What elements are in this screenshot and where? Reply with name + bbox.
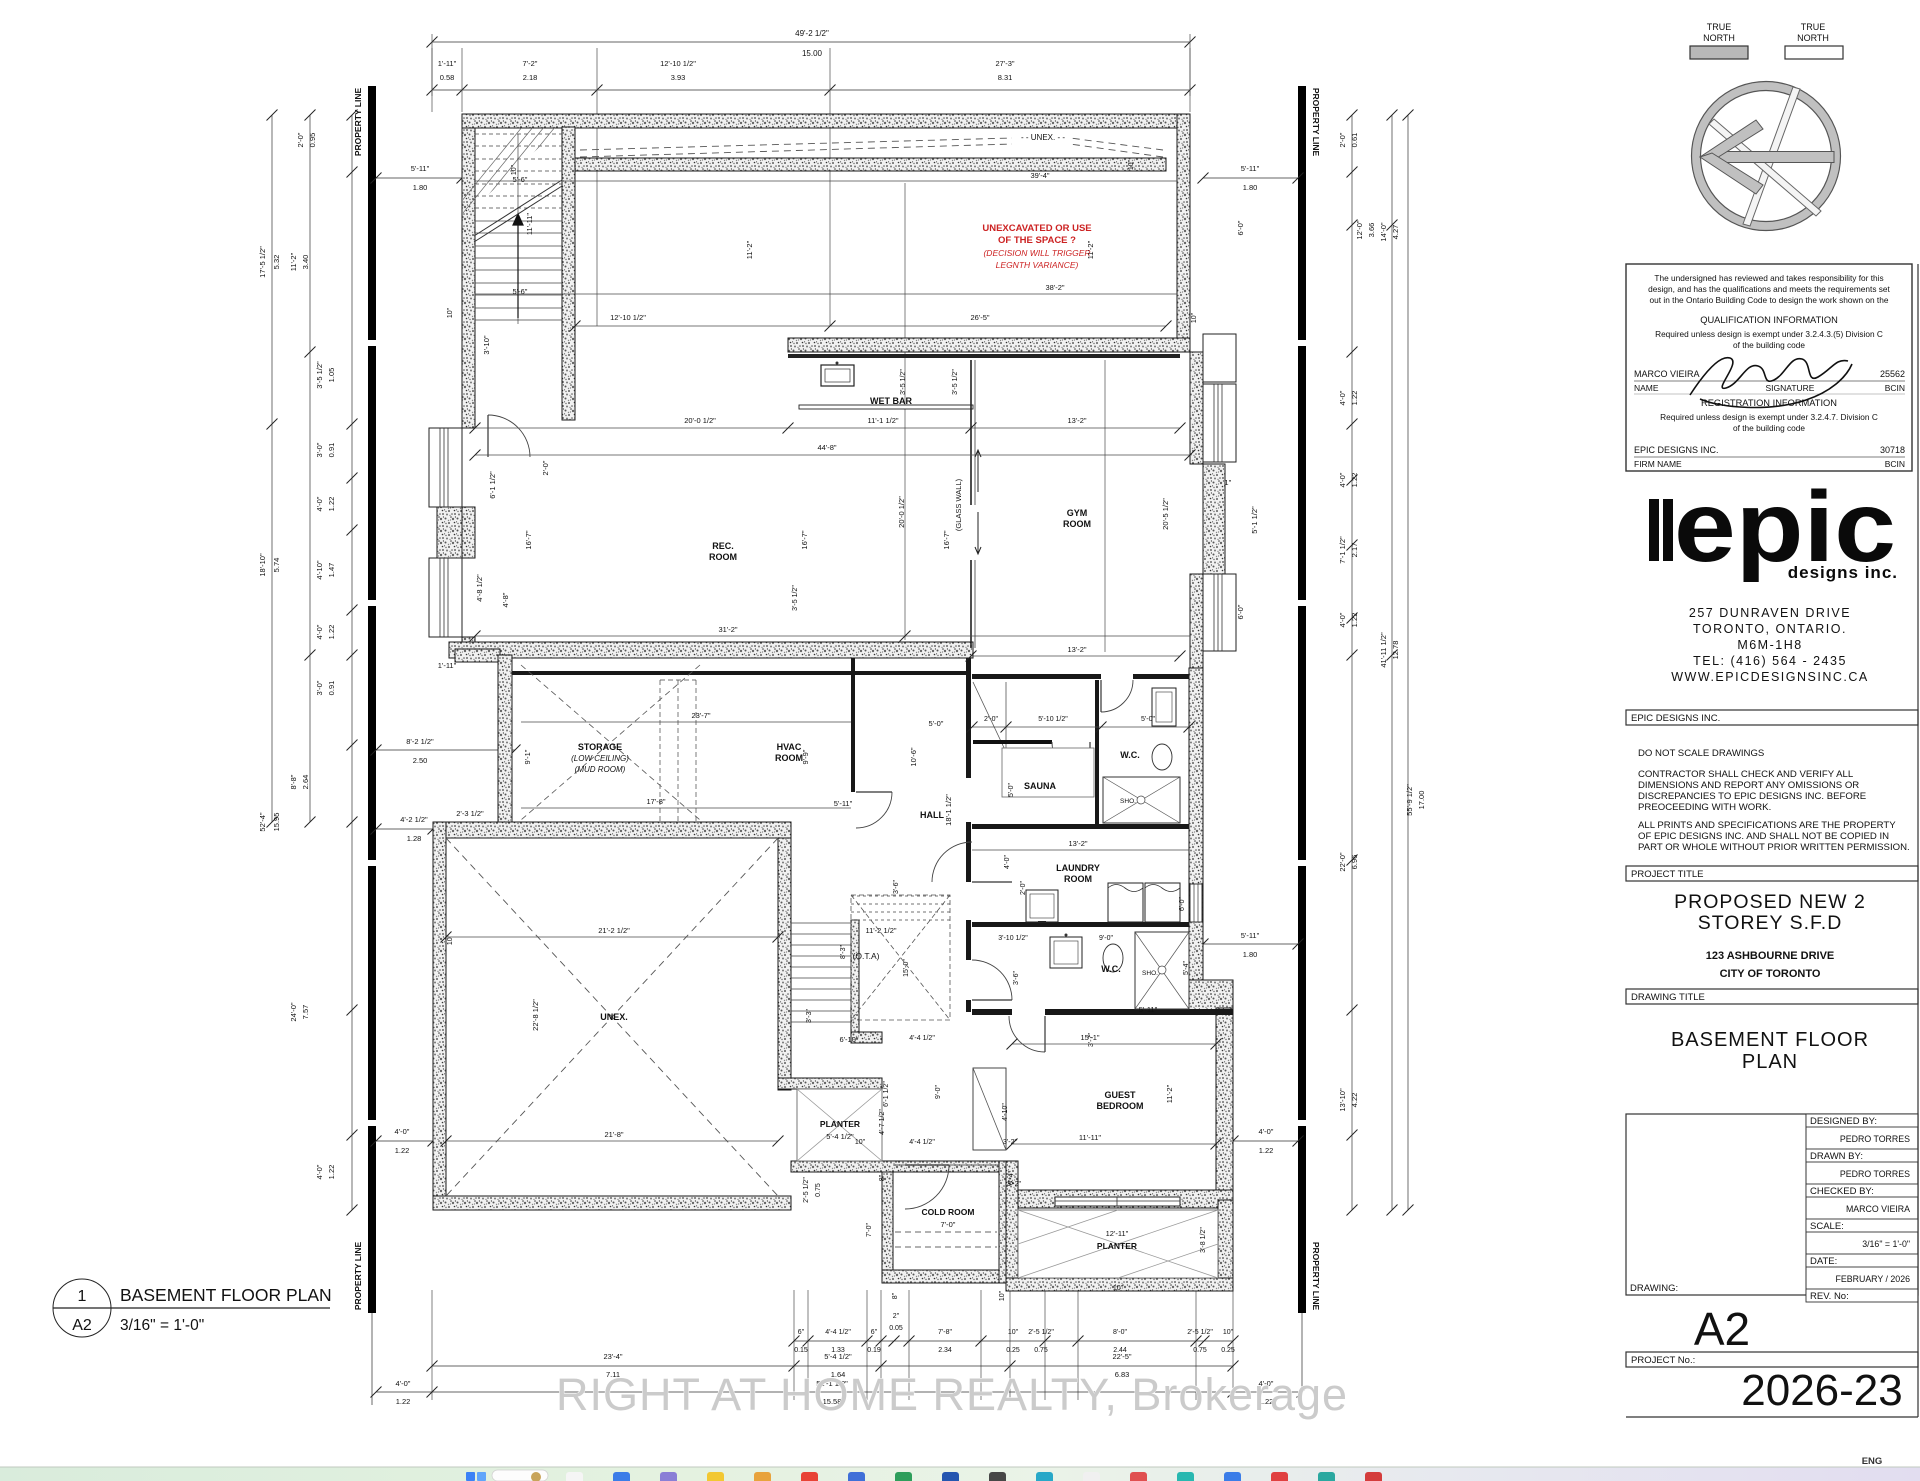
svg-text:The undersigned has reviewed a: The undersigned has reviewed and takes r…	[1654, 273, 1883, 283]
svg-text:0.19: 0.19	[867, 1347, 881, 1354]
svg-text:ALL PRINTS AND SPECIFICATIONS: ALL PRINTS AND SPECIFICATIONS ARE THE PR…	[1638, 820, 1896, 831]
svg-text:3/16" = 1'-0": 3/16" = 1'-0"	[120, 1317, 204, 1334]
svg-text:W.C.: W.C.	[1101, 964, 1121, 974]
svg-text:8.31: 8.31	[998, 73, 1013, 82]
svg-text:13'-2": 13'-2"	[1067, 416, 1086, 425]
svg-text:4'-0": 4'-0"	[1004, 855, 1011, 869]
svg-text:LEGNTH VARIANCE): LEGNTH VARIANCE)	[996, 260, 1079, 270]
svg-text:7.57: 7.57	[301, 1005, 310, 1020]
svg-text:3.93: 3.93	[671, 73, 686, 82]
svg-text:0.15: 0.15	[794, 1347, 808, 1354]
svg-text:OF EPIC DESIGNS INC. AND SHALL: OF EPIC DESIGNS INC. AND SHALL NOT BE CO…	[1638, 831, 1889, 842]
svg-text:MARCO VIEIRA: MARCO VIEIRA	[1634, 369, 1700, 379]
svg-text:DRAWING TITLE: DRAWING TITLE	[1631, 992, 1705, 1003]
svg-text:of the building code: of the building code	[1733, 423, 1805, 433]
svg-text:EPIC DESIGNS INC.: EPIC DESIGNS INC.	[1634, 445, 1719, 455]
svg-text:NORTH: NORTH	[1797, 33, 1829, 43]
svg-text:9'-9": 9'-9"	[801, 749, 810, 764]
svg-text:1.22: 1.22	[1350, 391, 1359, 406]
svg-text:PEDRO TORRES: PEDRO TORRES	[1840, 1134, 1910, 1144]
svg-text:COLD ROOM: COLD ROOM	[922, 1207, 975, 1217]
svg-text:2'-5 1/2": 2'-5 1/2"	[1028, 1329, 1054, 1336]
svg-text:3'-0": 3'-0"	[315, 442, 324, 457]
svg-text:31'-2": 31'-2"	[718, 625, 737, 634]
svg-text:5'-0": 5'-0"	[1141, 716, 1155, 723]
svg-text:3'-2": 3'-2"	[1003, 1139, 1017, 1146]
svg-text:12'-11": 12'-11"	[1106, 1229, 1129, 1238]
svg-text:13'-2": 13'-2"	[1067, 645, 1086, 654]
svg-text:1.05: 1.05	[327, 368, 336, 383]
svg-text:4'-0": 4'-0"	[1338, 472, 1347, 487]
svg-text:0.91: 0.91	[327, 681, 336, 696]
svg-text:4'-8 1/2": 4'-8 1/2"	[475, 574, 484, 602]
svg-text:7'-8": 7'-8"	[938, 1329, 952, 1336]
svg-text:1.22: 1.22	[327, 497, 336, 512]
svg-text:PEDRO TORRES: PEDRO TORRES	[1840, 1169, 1910, 1179]
svg-text:5'-4 1/2": 5'-4 1/2"	[826, 1132, 854, 1141]
svg-text:13'-2": 13'-2"	[1068, 839, 1087, 848]
svg-text:ROOM: ROOM	[1064, 874, 1092, 884]
svg-text:1.22: 1.22	[1259, 1146, 1274, 1155]
svg-text:0.58: 0.58	[440, 73, 455, 82]
svg-text:4'-0": 4'-0"	[1338, 390, 1347, 405]
svg-text:6'-10": 6'-10"	[839, 1035, 858, 1044]
svg-text:44'-8": 44'-8"	[817, 443, 836, 452]
svg-text:4'-10": 4'-10"	[1002, 1103, 1009, 1121]
svg-text:designs inc.: designs inc.	[1788, 563, 1898, 582]
svg-text:38'-2": 38'-2"	[1045, 283, 1064, 292]
svg-text:(LOW CEILING): (LOW CEILING)	[571, 754, 629, 763]
svg-text:41'-11 1/2": 41'-11 1/2"	[1379, 632, 1388, 668]
svg-text:DRAWN BY:: DRAWN BY:	[1810, 1151, 1863, 1162]
svg-text:3'-10": 3'-10"	[482, 335, 491, 354]
svg-text:FEBRUARY / 2026: FEBRUARY / 2026	[1836, 1274, 1911, 1284]
svg-text:11'-11": 11'-11"	[1079, 1133, 1102, 1142]
svg-text:QUALIFICATION INFORMATION: QUALIFICATION INFORMATION	[1700, 315, 1838, 325]
svg-text:27'-3": 27'-3"	[995, 59, 1014, 68]
svg-text:5'-6": 5'-6"	[513, 175, 528, 184]
svg-text:3'-5 1/2": 3'-5 1/2"	[792, 585, 799, 611]
svg-text:TRUE: TRUE	[1707, 22, 1732, 32]
svg-text:15'-0": 15'-0"	[903, 959, 910, 977]
svg-text:23'-7": 23'-7"	[691, 711, 710, 720]
svg-text:6": 6"	[798, 1329, 805, 1336]
svg-text:2'-0": 2'-0"	[984, 716, 998, 723]
svg-text:RIGHT AT HOME REALTY, Brokerag: RIGHT AT HOME REALTY, Brokerage	[556, 1369, 1348, 1420]
svg-text:10": 10"	[999, 1290, 1006, 1301]
svg-text:ENG: ENG	[1862, 1456, 1883, 1467]
svg-text:7'-0": 7'-0"	[941, 1220, 956, 1229]
svg-text:WWW.EPICDESIGNSINC.CA: WWW.EPICDESIGNSINC.CA	[1671, 670, 1868, 684]
svg-text:1.22: 1.22	[327, 1165, 336, 1180]
svg-text:1.22: 1.22	[396, 1397, 411, 1406]
svg-text:REC.: REC.	[712, 541, 734, 551]
svg-text:2'-0": 2'-0"	[296, 132, 305, 147]
svg-text:4'-10": 4'-10"	[315, 560, 324, 579]
svg-text:21'-8": 21'-8"	[604, 1130, 623, 1139]
svg-text:6'-4": 6'-4"	[1008, 1171, 1015, 1185]
svg-text:7'-0": 7'-0"	[866, 1223, 873, 1237]
svg-text:OF THE SPACE ?: OF THE SPACE ?	[998, 235, 1076, 246]
svg-text:257 DUNRAVEN DRIVE: 257 DUNRAVEN DRIVE	[1689, 606, 1851, 620]
svg-text:3'-0": 3'-0"	[315, 680, 324, 695]
svg-text:17'-8": 17'-8"	[646, 797, 665, 806]
svg-text:5'-11": 5'-11"	[1241, 164, 1260, 173]
svg-text:11'-2": 11'-2"	[289, 252, 298, 271]
svg-text:2.18: 2.18	[523, 73, 538, 82]
svg-text:9'-0": 9'-0"	[1099, 935, 1113, 942]
svg-text:0.25: 0.25	[1221, 1347, 1235, 1354]
svg-text:8": 8"	[879, 1174, 886, 1181]
svg-text:2": 2"	[893, 1313, 900, 1320]
svg-text:GUEST: GUEST	[1104, 1090, 1136, 1100]
svg-text:ROOM: ROOM	[775, 753, 803, 763]
svg-text:4'-0": 4'-0"	[1259, 1127, 1274, 1136]
svg-text:5'-0": 5'-0"	[929, 719, 944, 728]
svg-text:8'-0": 8'-0"	[1113, 1329, 1127, 1336]
svg-text:1: 1	[78, 1288, 87, 1305]
svg-text:BCIN: BCIN	[1885, 383, 1905, 393]
svg-text:REV. No:: REV. No:	[1810, 1291, 1849, 1302]
svg-text:1.80: 1.80	[1243, 950, 1258, 959]
svg-text:55'-9 1/2": 55'-9 1/2"	[1405, 784, 1414, 816]
svg-text:PROJECT TITLE: PROJECT TITLE	[1631, 869, 1704, 880]
svg-text:11'-2": 11'-2"	[1086, 240, 1095, 259]
svg-text:PROPERTY LINE: PROPERTY LINE	[353, 1242, 363, 1311]
svg-text:Required unless design is exem: Required unless design is exempt under 3…	[1655, 329, 1883, 339]
svg-text:12'-10 1/2": 12'-10 1/2"	[610, 313, 646, 322]
svg-text:11'-2": 11'-2"	[1165, 1084, 1174, 1103]
svg-text:4.27: 4.27	[1391, 225, 1400, 240]
svg-text:6'-1 1/2": 6'-1 1/2"	[883, 1081, 890, 1107]
svg-text:BASEMENT FLOOR PLAN: BASEMENT FLOOR PLAN	[120, 1285, 332, 1305]
svg-text:22'-5": 22'-5"	[1112, 1352, 1131, 1361]
svg-text:0.61: 0.61	[1350, 133, 1359, 148]
svg-text:1.80: 1.80	[413, 183, 428, 192]
svg-text:18'-1 1/2": 18'-1 1/2"	[944, 794, 953, 826]
svg-text:39'-4": 39'-4"	[1030, 171, 1049, 180]
svg-text:6'-0": 6'-0"	[1236, 220, 1245, 235]
svg-text:1.28: 1.28	[407, 834, 422, 843]
svg-text:20'-5 1/2": 20'-5 1/2"	[1161, 498, 1170, 530]
svg-text:4'-4 1/2": 4'-4 1/2"	[825, 1329, 851, 1336]
svg-text:4'-0": 4'-0"	[315, 624, 324, 639]
svg-text:5.32: 5.32	[272, 255, 281, 270]
svg-text:TORONTO, ONTARIO.: TORONTO, ONTARIO.	[1693, 622, 1847, 636]
svg-text:6'-0": 6'-0"	[1179, 897, 1186, 911]
svg-text:11'-2 1/2": 11'-2 1/2"	[865, 926, 896, 935]
svg-text:3/16" = 1'-0": 3/16" = 1'-0"	[1862, 1239, 1910, 1249]
svg-text:24'-0": 24'-0"	[289, 1002, 298, 1021]
svg-text:WET BAR: WET BAR	[870, 396, 912, 406]
svg-text:TEL: (416) 564 - 2435: TEL: (416) 564 - 2435	[1693, 654, 1847, 668]
svg-text:3.66: 3.66	[1367, 223, 1376, 238]
svg-text:0.91: 0.91	[327, 443, 336, 458]
svg-text:25562: 25562	[1880, 369, 1905, 379]
svg-text:out in the Ontario Building Co: out in the Ontario Building Code to desi…	[1650, 295, 1889, 305]
svg-text:TRUE: TRUE	[1801, 22, 1826, 32]
svg-text:PLAN: PLAN	[1742, 1051, 1798, 1073]
svg-text:5'-11": 5'-11"	[411, 164, 430, 173]
svg-text:22'-0": 22'-0"	[1338, 852, 1347, 871]
svg-text:CITY OF TORONTO: CITY OF TORONTO	[1720, 968, 1821, 980]
svg-text:PROPERTY LINE: PROPERTY LINE	[1311, 1242, 1321, 1311]
svg-text:PLANTER: PLANTER	[1097, 1241, 1137, 1251]
svg-text:3'-5 1/2": 3'-5 1/2"	[900, 369, 907, 395]
svg-text:DATE:: DATE:	[1810, 1256, 1837, 1267]
svg-text:(MUD ROOM): (MUD ROOM)	[575, 765, 626, 774]
svg-text:0.75: 0.75	[815, 1183, 822, 1197]
svg-text:4'-7 1/2": 4'-7 1/2"	[879, 1109, 886, 1135]
svg-text:12'-10 1/2": 12'-10 1/2"	[660, 59, 696, 68]
svg-text:52'-4": 52'-4"	[258, 812, 267, 831]
svg-text:4'-0": 4'-0"	[315, 1164, 324, 1179]
svg-text:49'-2 1/2": 49'-2 1/2"	[795, 29, 829, 38]
svg-text:4'-4 1/2": 4'-4 1/2"	[909, 1035, 935, 1042]
svg-text:UNEXCAVATED OR USE: UNEXCAVATED OR USE	[982, 223, 1091, 234]
svg-text:1.22: 1.22	[1350, 613, 1359, 628]
svg-text:GYM: GYM	[1067, 508, 1088, 518]
svg-text:PREOCEEDING WITH WORK.: PREOCEEDING WITH WORK.	[1638, 802, 1771, 813]
svg-text:10": 10"	[1128, 159, 1135, 170]
svg-text:11'-2": 11'-2"	[745, 240, 754, 259]
svg-text:PROPERTY LINE: PROPERTY LINE	[1311, 88, 1321, 157]
svg-text:5'-11": 5'-11"	[1139, 1005, 1158, 1014]
svg-text:3'-5 1/2": 3'-5 1/2"	[315, 361, 324, 389]
svg-text:2'-0": 2'-0"	[1020, 881, 1027, 895]
svg-text:SCALE:: SCALE:	[1810, 1221, 1844, 1232]
svg-text:10": 10"	[1008, 1329, 1019, 1336]
svg-text:PROPOSED NEW 2: PROPOSED NEW 2	[1674, 891, 1866, 913]
svg-text:5'-11": 5'-11"	[834, 799, 853, 808]
svg-text:4.22: 4.22	[1350, 1093, 1359, 1108]
svg-text:6'-0": 6'-0"	[1236, 604, 1245, 619]
svg-text:22'-8 1/2": 22'-8 1/2"	[531, 999, 540, 1031]
svg-text:4'-8": 4'-8"	[501, 592, 510, 607]
svg-text:HALL: HALL	[920, 810, 944, 820]
svg-text:5'-4 1/2": 5'-4 1/2"	[824, 1352, 852, 1361]
svg-text:18'-10": 18'-10"	[258, 553, 267, 577]
svg-text:13'-10": 13'-10"	[1338, 1088, 1347, 1112]
svg-text:10": 10"	[447, 934, 454, 945]
svg-text:15.00: 15.00	[802, 49, 823, 58]
svg-text:4'-0": 4'-0"	[395, 1127, 410, 1136]
svg-text:12'-0": 12'-0"	[1355, 220, 1364, 239]
svg-text:17'-5 1/2": 17'-5 1/2"	[258, 246, 267, 278]
svg-text:3'-3": 3'-3"	[806, 1009, 813, 1023]
svg-text:16'-7": 16'-7"	[800, 530, 809, 549]
svg-text:5'-11": 5'-11"	[1241, 931, 1260, 940]
svg-text:(DECISION WILL TRIGGER: (DECISION WILL TRIGGER	[983, 248, 1090, 258]
svg-text:PART OR WHOLE WITHOUT PRIOR WR: PART OR WHOLE WITHOUT PRIOR WRITTEN PERM…	[1638, 842, 1910, 853]
svg-text:23'-4": 23'-4"	[603, 1352, 622, 1361]
svg-text:1.22: 1.22	[395, 1146, 410, 1155]
svg-text:SHO.: SHO.	[1142, 970, 1158, 977]
svg-text:3'-10 1/2": 3'-10 1/2"	[998, 935, 1028, 942]
svg-text:8": 8"	[892, 1292, 899, 1299]
svg-text:design, and has the qualificat: design, and has the qualifications and m…	[1648, 284, 1890, 294]
svg-text:STORAGE: STORAGE	[578, 742, 622, 752]
svg-text:NORTH: NORTH	[1703, 33, 1735, 43]
svg-text:7'-1 1/2": 7'-1 1/2"	[1338, 536, 1347, 564]
svg-text:SAUNA: SAUNA	[1024, 781, 1057, 791]
svg-text:17.00: 17.00	[1417, 791, 1426, 810]
svg-text:2'-5 1/2": 2'-5 1/2"	[1187, 1329, 1213, 1336]
svg-text:8'-8": 8'-8"	[289, 774, 298, 789]
svg-text:3'-5 1/2": 3'-5 1/2"	[952, 369, 959, 395]
svg-text:9'-0": 9'-0"	[935, 1085, 942, 1099]
svg-text:2'-3 1/2": 2'-3 1/2"	[456, 809, 484, 818]
svg-text:5'-6": 5'-6"	[513, 287, 528, 296]
svg-text:EPIC DESIGNS INC.: EPIC DESIGNS INC.	[1631, 713, 1720, 724]
svg-text:(GLASS WALL): (GLASS WALL)	[954, 478, 963, 531]
svg-text:FIRM NAME: FIRM NAME	[1634, 459, 1682, 469]
svg-text:0.75: 0.75	[1193, 1347, 1207, 1354]
svg-text:UNEX.: UNEX.	[600, 1012, 628, 1022]
svg-text:M6M-1H8: M6M-1H8	[1737, 638, 1802, 652]
svg-text:8'-2 1/2": 8'-2 1/2"	[406, 737, 434, 746]
svg-text:10": 10"	[1223, 1329, 1234, 1336]
svg-text:Required unless design is exem: Required unless design is exempt under 3…	[1660, 412, 1878, 422]
svg-text:2.64: 2.64	[301, 775, 310, 790]
svg-text:5.74: 5.74	[272, 558, 281, 573]
svg-text:6'-1 1/2": 6'-1 1/2"	[488, 471, 497, 499]
svg-text:- - UNEX. - -: - - UNEX. - -	[1021, 133, 1065, 142]
svg-text:21'-2 1/2": 21'-2 1/2"	[598, 926, 630, 935]
svg-text:DRAWING:: DRAWING:	[1630, 1283, 1678, 1294]
svg-text:1.22: 1.22	[1350, 473, 1359, 488]
svg-text:BASEMENT FLOOR: BASEMENT FLOOR	[1671, 1029, 1869, 1051]
svg-text:4'-0": 4'-0"	[396, 1379, 411, 1388]
svg-text:2'-0": 2'-0"	[1338, 132, 1347, 147]
svg-text:W.C.: W.C.	[1120, 750, 1140, 760]
svg-text:1.80: 1.80	[1243, 183, 1258, 192]
svg-text:2'-0": 2'-0"	[541, 460, 550, 475]
svg-text:20'-0 1/2": 20'-0 1/2"	[897, 496, 906, 528]
svg-text:A2: A2	[72, 1317, 92, 1334]
svg-text:PLANTER: PLANTER	[820, 1119, 860, 1129]
svg-text:DISCREPANCIES TO EPIC DESIGNS: DISCREPANCIES TO EPIC DESIGNS INC. BEFOR…	[1638, 791, 1866, 802]
svg-text:5'-0": 5'-0"	[1008, 783, 1015, 797]
svg-text:5'-4": 5'-4"	[1183, 961, 1190, 975]
svg-text:DIMENSIONS AND REPORT ANY OMIS: DIMENSIONS AND REPORT ANY OMISSIONS OR	[1638, 780, 1859, 791]
svg-text:16'-7": 16'-7"	[524, 530, 533, 549]
svg-text:A2: A2	[1694, 1303, 1750, 1355]
svg-text:2.17: 2.17	[1350, 543, 1359, 558]
svg-text:12.78: 12.78	[1391, 641, 1400, 660]
svg-text:1.47: 1.47	[327, 563, 336, 578]
svg-text:15'-1": 15'-1"	[1080, 1033, 1099, 1042]
svg-text:11'-1 1/2": 11'-1 1/2"	[867, 416, 898, 425]
svg-text:PROPERTY LINE: PROPERTY LINE	[353, 88, 363, 157]
svg-text:10": 10"	[1191, 312, 1198, 323]
svg-text:10": 10"	[447, 307, 454, 318]
svg-text:MARCO VIEIRA: MARCO VIEIRA	[1846, 1204, 1910, 1214]
svg-text:15.95: 15.95	[272, 813, 281, 832]
svg-text:CHECKED BY:: CHECKED BY:	[1810, 1186, 1874, 1197]
svg-text:10'-6": 10'-6"	[909, 747, 918, 766]
svg-text:16'-7": 16'-7"	[942, 530, 951, 549]
svg-text:20'-0 1/2": 20'-0 1/2"	[684, 416, 716, 425]
svg-text:1'-11": 1'-11"	[438, 661, 457, 670]
svg-text:7'-2": 7'-2"	[523, 59, 538, 68]
svg-text:DO NOT SCALE DRAWINGS: DO NOT SCALE DRAWINGS	[1638, 748, 1764, 759]
svg-text:ROOM: ROOM	[709, 552, 737, 562]
svg-text:1.22: 1.22	[327, 625, 336, 640]
svg-text:3.40: 3.40	[301, 255, 310, 270]
svg-text:6.96: 6.96	[1350, 855, 1359, 870]
svg-text:STOREY S.F.D: STOREY S.F.D	[1698, 912, 1843, 934]
svg-text:3'-6": 3'-6"	[1013, 971, 1020, 985]
svg-text:4'-0": 4'-0"	[1338, 612, 1347, 627]
svg-text:2.50: 2.50	[413, 756, 428, 765]
svg-text:0.95: 0.95	[308, 133, 317, 148]
svg-text:11'-11": 11'-11"	[525, 213, 534, 236]
svg-text:4'-2 1/2": 4'-2 1/2"	[400, 815, 428, 824]
svg-text:10": 10"	[511, 164, 518, 175]
svg-text:NAME: NAME	[1634, 383, 1659, 393]
svg-text:2.34: 2.34	[938, 1347, 952, 1354]
svg-text:123 ASHBOURNE DRIVE: 123 ASHBOURNE DRIVE	[1706, 950, 1835, 962]
svg-text:2026-23: 2026-23	[1741, 1366, 1902, 1415]
svg-text:10": 10"	[855, 1139, 866, 1146]
svg-text:0.25: 0.25	[1006, 1347, 1020, 1354]
svg-text:5'-10 1/2": 5'-10 1/2"	[1038, 716, 1068, 723]
svg-text:26'-5": 26'-5"	[970, 313, 989, 322]
svg-text:4'-4 1/2": 4'-4 1/2"	[909, 1139, 935, 1146]
svg-text:DESIGNED BY:: DESIGNED BY:	[1810, 1116, 1877, 1127]
svg-text:1'-11": 1'-11"	[438, 59, 457, 68]
svg-text:ROOM: ROOM	[1063, 519, 1091, 529]
svg-text:0.75: 0.75	[1034, 1347, 1048, 1354]
svg-text:LAUNDRY: LAUNDRY	[1056, 863, 1100, 873]
svg-text:2'-5 1/2": 2'-5 1/2"	[803, 1177, 810, 1203]
svg-text:PROJECT No.:: PROJECT No.:	[1631, 1355, 1695, 1366]
svg-text:of the building code: of the building code	[1733, 340, 1805, 350]
svg-text:14'-0": 14'-0"	[1379, 222, 1388, 241]
svg-text:CONTRACTOR SHALL CHECK AND VER: CONTRACTOR SHALL CHECK AND VERIFY ALL	[1638, 769, 1854, 780]
svg-text:8'-3": 8'-3"	[840, 945, 847, 959]
svg-text:0.05: 0.05	[889, 1325, 903, 1332]
svg-text:10": 10"	[1113, 1285, 1124, 1292]
svg-text:3'-8 1/2": 3'-8 1/2"	[1200, 1227, 1207, 1253]
svg-text:3'-6": 3'-6"	[893, 880, 900, 894]
svg-text:30718: 30718	[1880, 445, 1905, 455]
svg-text:5'-1 1/2": 5'-1 1/2"	[1250, 506, 1259, 534]
svg-text:BCIN: BCIN	[1885, 459, 1905, 469]
svg-text:6": 6"	[871, 1329, 878, 1336]
svg-text:SIGNATURE: SIGNATURE	[1766, 383, 1815, 393]
svg-text:4'-0": 4'-0"	[315, 496, 324, 511]
svg-text:(O.T.A): (O.T.A)	[853, 951, 880, 961]
svg-text:9'-1": 9'-1"	[523, 749, 532, 764]
svg-text:BEDROOM: BEDROOM	[1097, 1101, 1144, 1111]
svg-text:SHO.: SHO.	[1120, 798, 1136, 805]
svg-text:HVAC: HVAC	[777, 742, 802, 752]
